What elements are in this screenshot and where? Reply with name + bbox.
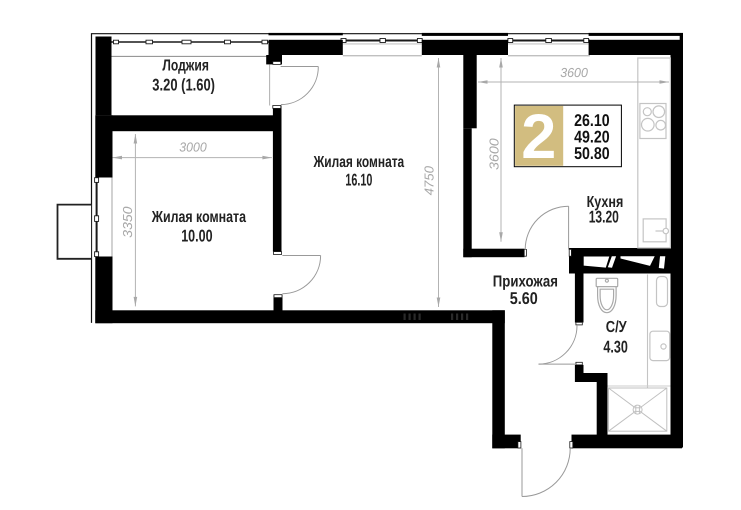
svg-text:4750: 4750	[422, 165, 437, 195]
svg-text:Прихожая: Прихожая	[493, 273, 558, 290]
svg-text:16.10: 16.10	[345, 170, 372, 189]
svg-text:2: 2	[521, 102, 556, 172]
svg-text:4.30: 4.30	[603, 338, 628, 357]
svg-text:50.80: 50.80	[574, 144, 610, 163]
svg-text:3600: 3600	[486, 137, 501, 170]
svg-text:5.60: 5.60	[510, 289, 538, 308]
svg-text:Жилая комната: Жилая комната	[151, 209, 246, 226]
svg-text:10.00: 10.00	[181, 227, 212, 246]
svg-text:3.20 (1.60): 3.20 (1.60)	[152, 76, 215, 95]
svg-text:Жилая комната: Жилая комната	[313, 154, 405, 171]
svg-text:3350: 3350	[120, 206, 135, 238]
svg-text:3000: 3000	[179, 139, 207, 154]
svg-text:Лоджия: Лоджия	[162, 57, 209, 74]
svg-text:13.20: 13.20	[589, 207, 619, 226]
svg-text:3600: 3600	[560, 65, 588, 80]
svg-text:С/У: С/У	[606, 319, 628, 336]
